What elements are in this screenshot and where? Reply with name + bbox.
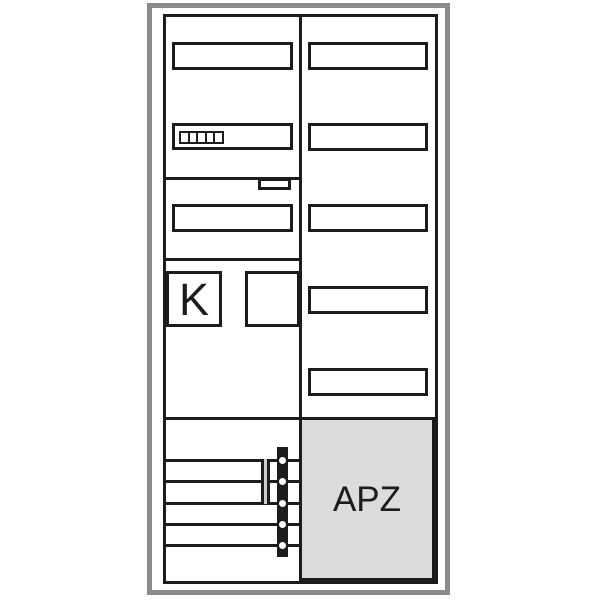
terminal-dot (279, 457, 286, 464)
din-device-modules (179, 131, 224, 144)
module-cell (181, 133, 188, 142)
module-cell (196, 133, 205, 142)
k-field-label: K (179, 277, 209, 322)
slot-left-2 (172, 204, 293, 232)
slot-right-5 (308, 368, 428, 396)
terminal-strip (277, 447, 288, 557)
diagram-canvas: K APZ (0, 0, 600, 600)
slot-left-1 (172, 42, 293, 70)
module-cell (205, 133, 214, 142)
terminal-dot (279, 500, 286, 507)
apz-field: APZ (299, 417, 435, 581)
slot-right-3 (308, 204, 428, 232)
module-cell (188, 133, 197, 142)
slot-right-4 (308, 286, 428, 314)
apz-label: APZ (333, 482, 401, 517)
mounting-tab (258, 178, 291, 190)
terminal-dot (279, 542, 286, 549)
slot-right-2 (308, 123, 428, 151)
left-section-divider-2 (166, 258, 302, 261)
slot-right-1 (308, 42, 428, 70)
busbar-holder (261, 459, 270, 504)
k-field-box: K (166, 271, 222, 327)
cabinet-outline: K APZ (163, 14, 438, 584)
terminal-dot (279, 521, 286, 528)
terminal-dot (279, 478, 286, 485)
blank-field-box (245, 271, 300, 327)
module-cell (213, 133, 222, 142)
